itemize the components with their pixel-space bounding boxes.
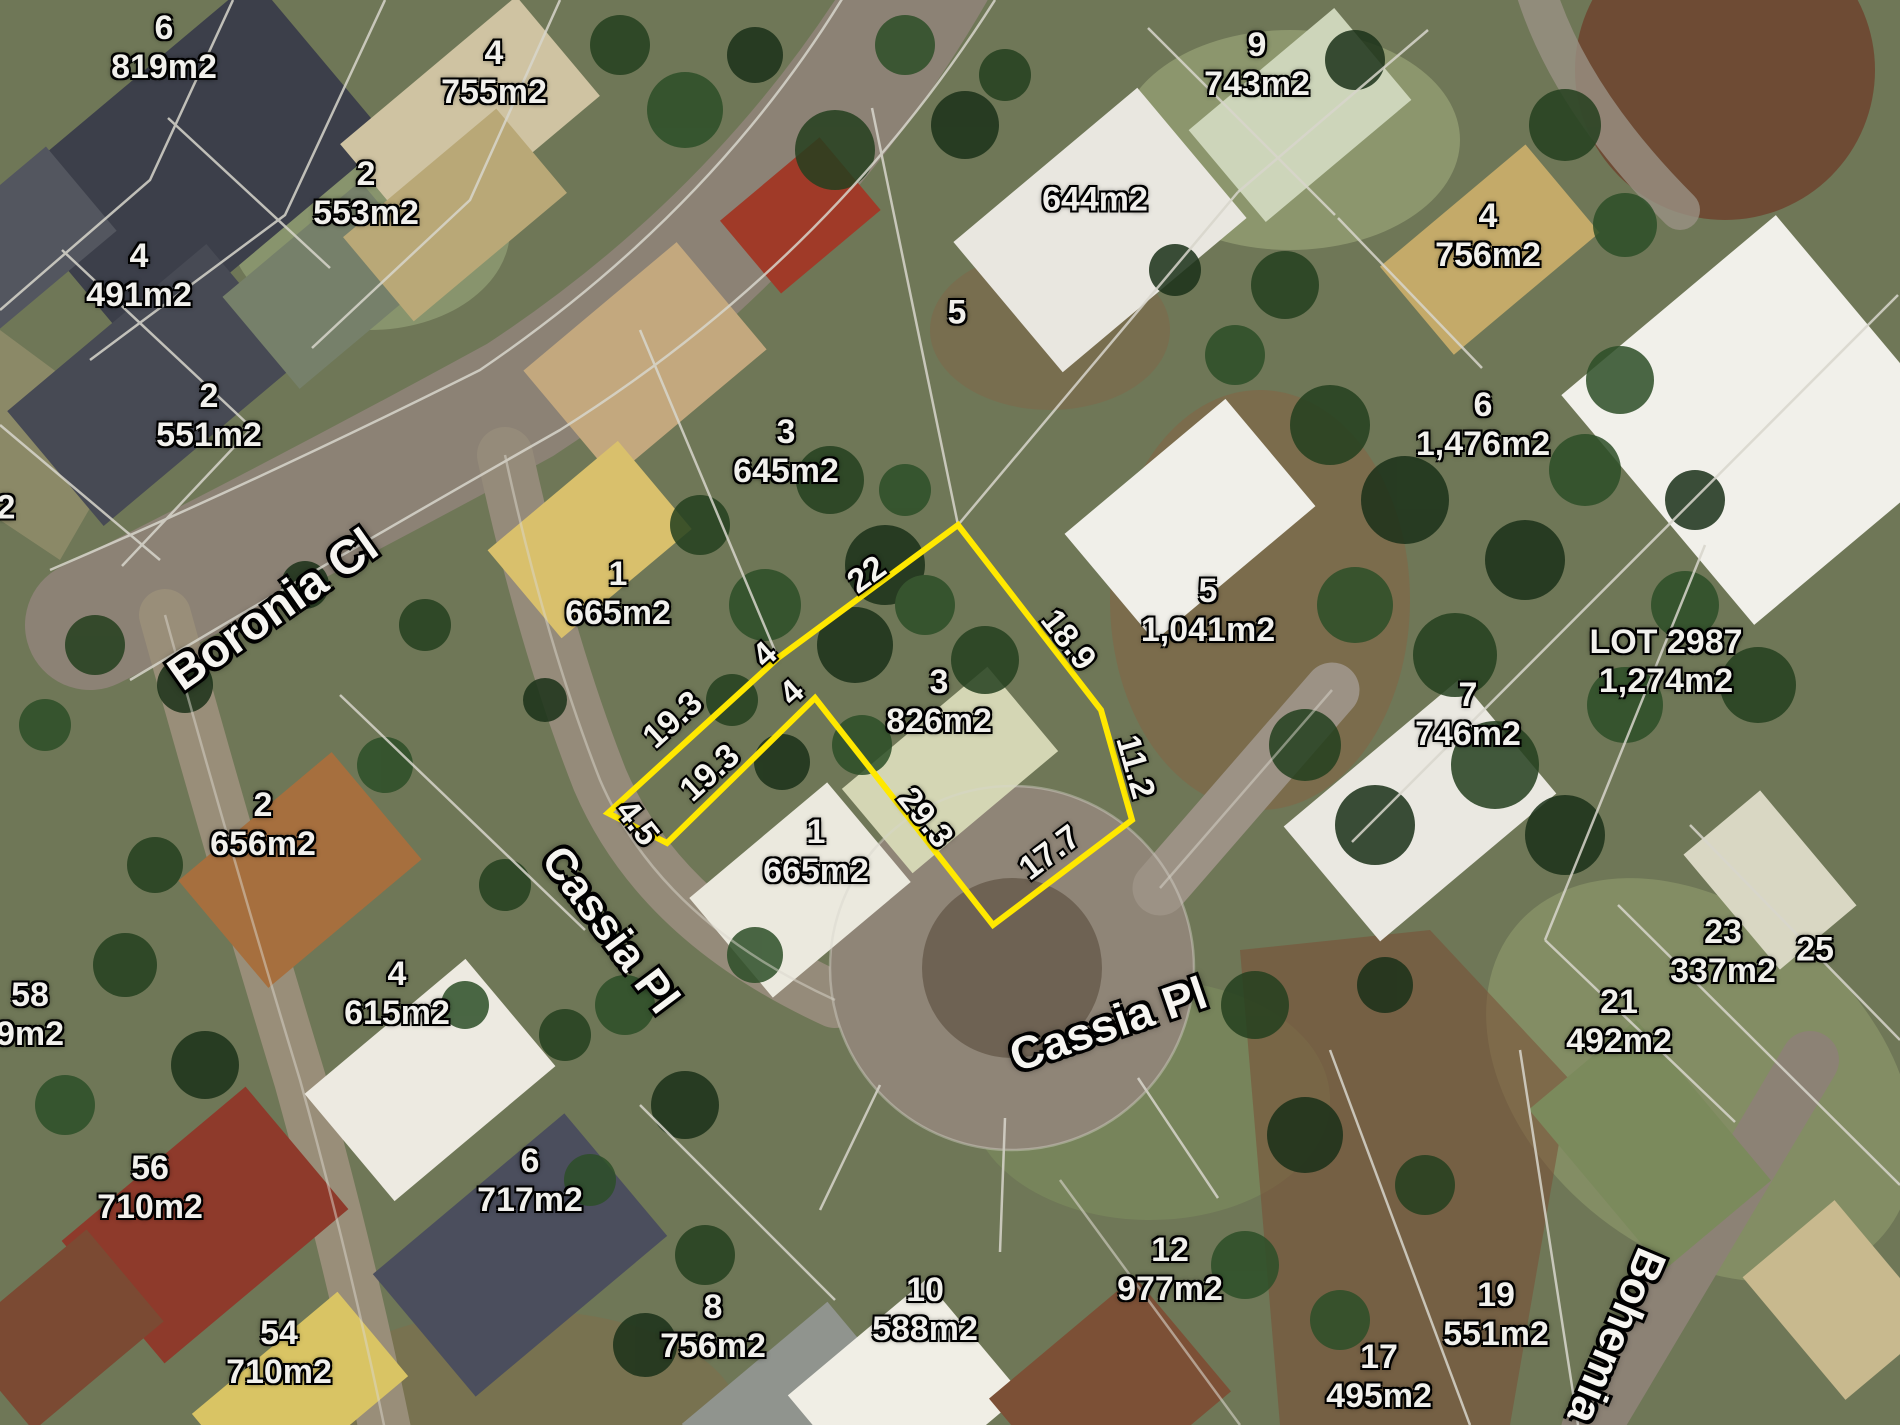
lot-area: 656m2 bbox=[210, 825, 316, 864]
lot-number: 6 bbox=[111, 9, 217, 48]
lot-label: 21492m2 bbox=[1566, 983, 1672, 1061]
lot-number: 4 bbox=[441, 34, 547, 73]
lot-number: 6 bbox=[1416, 386, 1550, 425]
lot-number: 2 bbox=[313, 155, 419, 194]
lot-label: 1665m2 bbox=[565, 555, 671, 633]
lot-number: 23 bbox=[1670, 913, 1776, 952]
lot-label: 2656m2 bbox=[210, 786, 316, 864]
street-name-label: Cassia Pl bbox=[1002, 965, 1213, 1083]
lot-number: 10 bbox=[872, 1271, 978, 1310]
lot-number: 1 bbox=[763, 813, 869, 852]
lot-label: 56710m2 bbox=[97, 1149, 203, 1227]
dimension-label: 4.5 bbox=[607, 792, 667, 853]
lot-area: 645m2 bbox=[733, 452, 839, 491]
lot-area: 491m2 bbox=[86, 276, 192, 315]
lot-number: 3 bbox=[886, 663, 992, 702]
lot-area: 615m2 bbox=[344, 994, 450, 1033]
lot-number: 25 bbox=[1796, 930, 1834, 969]
lot-label: 61,476m2 bbox=[1416, 386, 1550, 464]
lot-area: 337m2 bbox=[1670, 952, 1776, 991]
lot-label: 54710m2 bbox=[226, 1314, 332, 1392]
street-name-label: Boronia Cl bbox=[158, 518, 388, 702]
lot-area: 710m2 bbox=[226, 1353, 332, 1392]
lot-label: 19551m2 bbox=[1443, 1276, 1549, 1354]
lot-area: 553m2 bbox=[313, 194, 419, 233]
lot-area: 665m2 bbox=[565, 594, 671, 633]
lot-area: 977m2 bbox=[1117, 1270, 1223, 1309]
lot-label: 1665m2 bbox=[763, 813, 869, 891]
lot-label: 23337m2 bbox=[1670, 913, 1776, 991]
lot-area: 551m2 bbox=[1443, 1315, 1549, 1354]
lot-number: 5 bbox=[948, 293, 967, 332]
lot-number: 4 bbox=[86, 237, 192, 276]
dimension-label: 18.9 bbox=[1032, 602, 1103, 678]
lot-number: 19 bbox=[1443, 1276, 1549, 1315]
lot-number: 4 bbox=[344, 955, 450, 994]
lot-number: 5 bbox=[1141, 572, 1275, 611]
lot-number: 17 bbox=[1326, 1338, 1432, 1377]
lot-area: 492m2 bbox=[1566, 1022, 1672, 1061]
lot-label: 589m2 bbox=[0, 976, 64, 1054]
street-name-label: Bohemia bbox=[1557, 1241, 1676, 1425]
lot-area: 1,476m2 bbox=[1416, 425, 1550, 464]
lot-area: 826m2 bbox=[886, 702, 992, 741]
lot-number: 56 bbox=[97, 1149, 203, 1188]
map-canvas[interactable]: 6819m24755m22553m24491m22551m229743m2644… bbox=[0, 0, 1900, 1425]
lot-area: 644m2 bbox=[1042, 180, 1148, 219]
lot-number: 4 bbox=[1435, 197, 1541, 236]
lot-area: 756m2 bbox=[1435, 236, 1541, 275]
dimension-label: 29.3 bbox=[889, 780, 961, 856]
lot-area: 710m2 bbox=[97, 1188, 203, 1227]
lot-area: 746m2 bbox=[1415, 715, 1521, 754]
lot-area: 588m2 bbox=[872, 1310, 978, 1349]
lot-area: 1,274m2 bbox=[1589, 662, 1742, 701]
lot-number: 54 bbox=[226, 1314, 332, 1353]
lot-label: 5 bbox=[948, 293, 967, 332]
lot-area: 756m2 bbox=[660, 1327, 766, 1366]
lot-label: 4491m2 bbox=[86, 237, 192, 315]
lot-number: 1 bbox=[565, 555, 671, 594]
dimension-label: 17.7 bbox=[1012, 818, 1088, 889]
lot-number: 7 bbox=[1415, 676, 1521, 715]
lot-label: 2 bbox=[0, 488, 15, 527]
lot-area: 665m2 bbox=[763, 852, 869, 891]
dimension-label: 11.2 bbox=[1107, 731, 1162, 804]
dimension-label: 4 bbox=[745, 634, 785, 676]
lot-number: 2 bbox=[156, 377, 262, 416]
lot-number: 12 bbox=[1117, 1231, 1223, 1270]
lot-number: 9 bbox=[1204, 26, 1310, 65]
lot-label: 4755m2 bbox=[441, 34, 547, 112]
lot-area: 551m2 bbox=[156, 416, 262, 455]
lot-area: 755m2 bbox=[441, 73, 547, 112]
lot-label: 644m2 bbox=[1042, 180, 1148, 219]
lot-label: 2551m2 bbox=[156, 377, 262, 455]
lot-area: 743m2 bbox=[1204, 65, 1310, 104]
lot-label: 2553m2 bbox=[313, 155, 419, 233]
lot-area: 717m2 bbox=[477, 1181, 583, 1220]
street-name-label: Cassia Pl bbox=[531, 837, 689, 1023]
lot-label: 4615m2 bbox=[344, 955, 450, 1033]
lot-label: 9743m2 bbox=[1204, 26, 1310, 104]
lot-label: 6819m2 bbox=[111, 9, 217, 87]
lot-label: 10588m2 bbox=[872, 1271, 978, 1349]
dimension-label: 19.3 bbox=[672, 736, 747, 809]
lot-number: 58 bbox=[0, 976, 64, 1015]
lot-number: 2 bbox=[210, 786, 316, 825]
lot-label: 6717m2 bbox=[477, 1142, 583, 1220]
lot-number: LOT 2987 bbox=[1589, 623, 1742, 662]
lot-label: 7746m2 bbox=[1415, 676, 1521, 754]
lot-label: 3826m2 bbox=[886, 663, 992, 741]
dimension-label: 19.3 bbox=[635, 683, 710, 756]
lot-label: LOT 29871,274m2 bbox=[1589, 623, 1742, 701]
lot-label: 17495m2 bbox=[1326, 1338, 1432, 1416]
lot-label: 3645m2 bbox=[733, 413, 839, 491]
lot-label: 4756m2 bbox=[1435, 197, 1541, 275]
lot-number: 6 bbox=[477, 1142, 583, 1181]
lot-number: 8 bbox=[660, 1288, 766, 1327]
lot-label: 12977m2 bbox=[1117, 1231, 1223, 1309]
lot-area: 819m2 bbox=[111, 48, 217, 87]
lot-area: 1,041m2 bbox=[1141, 611, 1275, 650]
lot-number: 21 bbox=[1566, 983, 1672, 1022]
lot-area: 9m2 bbox=[0, 1015, 64, 1054]
lot-area: 495m2 bbox=[1326, 1377, 1432, 1416]
lot-label: 51,041m2 bbox=[1141, 572, 1275, 650]
lot-label: 8756m2 bbox=[660, 1288, 766, 1366]
labels-layer: 6819m24755m22553m24491m22551m229743m2644… bbox=[0, 0, 1900, 1425]
dimension-label: 4 bbox=[772, 672, 812, 714]
dimension-label: 22 bbox=[840, 548, 894, 602]
lot-number: 3 bbox=[733, 413, 839, 452]
lot-label: 25 bbox=[1796, 930, 1834, 969]
lot-number: 2 bbox=[0, 488, 15, 527]
